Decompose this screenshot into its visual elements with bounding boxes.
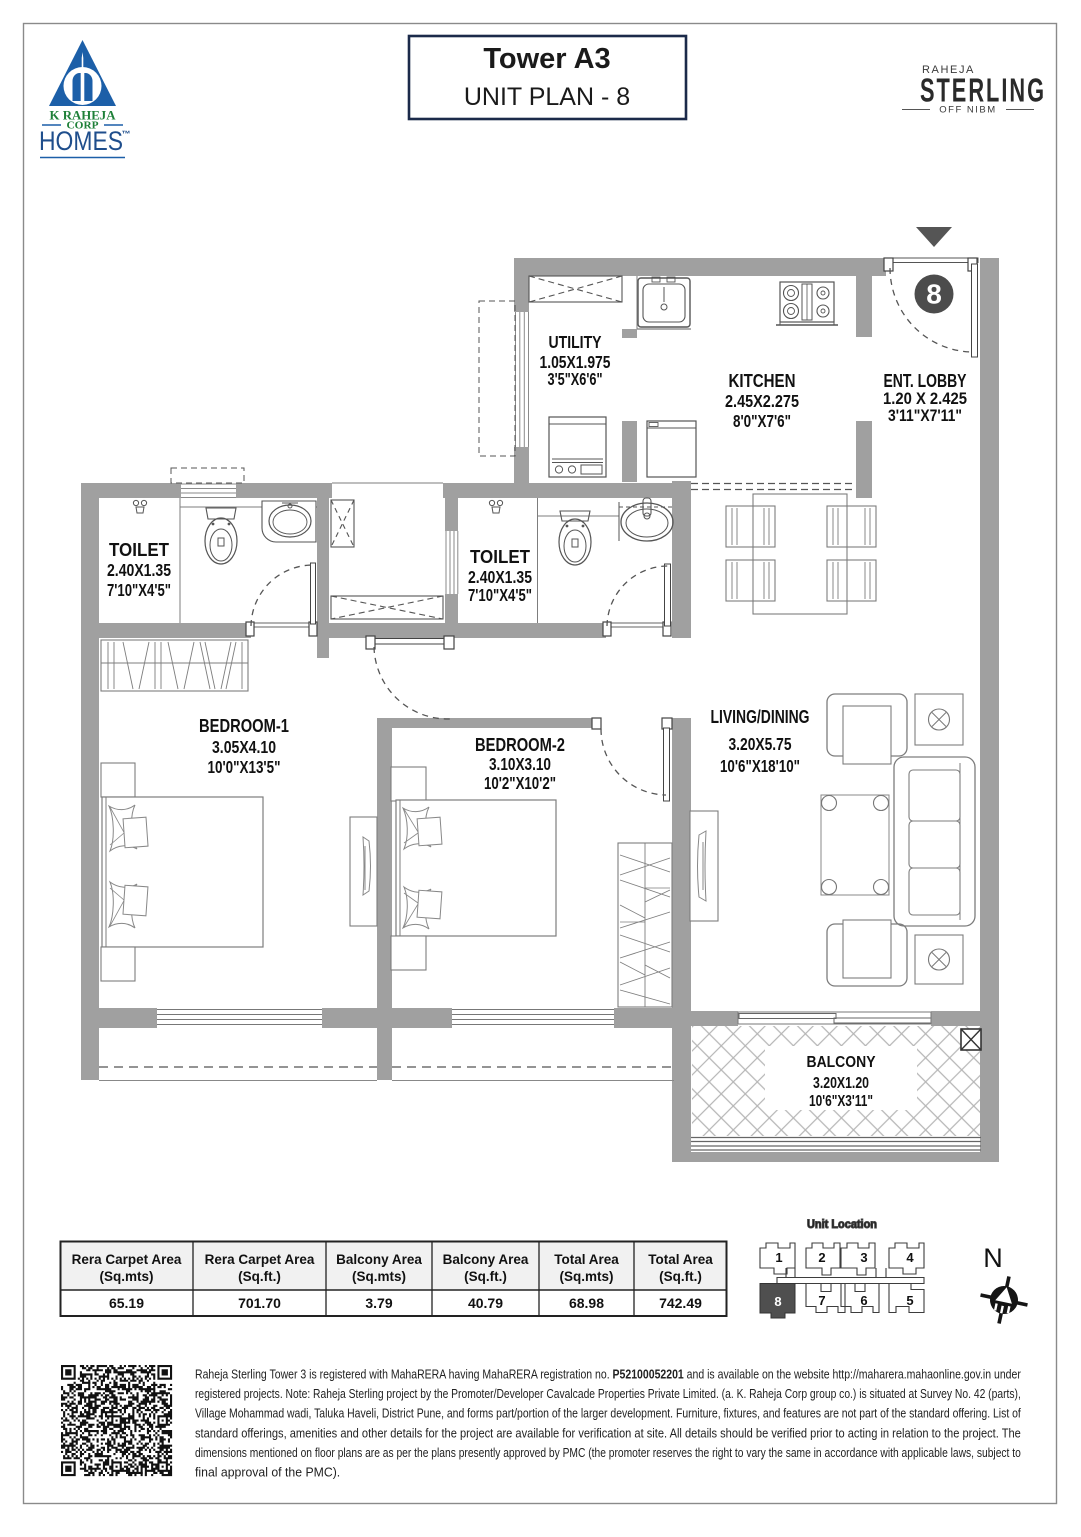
svg-text:2.45X2.275: 2.45X2.275 bbox=[725, 391, 799, 411]
svg-text:KITCHEN: KITCHEN bbox=[729, 371, 796, 391]
svg-text:10'6"X18'10": 10'6"X18'10" bbox=[720, 756, 800, 776]
svg-text:Unit Location: Unit Location bbox=[807, 1217, 877, 1231]
svg-text:6: 6 bbox=[860, 1293, 867, 1308]
svg-text:7: 7 bbox=[818, 1293, 825, 1308]
svg-text:N: N bbox=[983, 1243, 1003, 1273]
svg-text:3.05X4.10: 3.05X4.10 bbox=[212, 737, 276, 757]
svg-text:10'0"X13'5": 10'0"X13'5" bbox=[208, 757, 281, 777]
svg-text:742.49: 742.49 bbox=[659, 1295, 702, 1311]
svg-text:65.19: 65.19 bbox=[109, 1295, 144, 1311]
svg-text:2: 2 bbox=[818, 1250, 825, 1265]
svg-text:final approval of the PMC).: final approval of the PMC). bbox=[195, 1464, 340, 1480]
svg-text:68.98: 68.98 bbox=[569, 1295, 604, 1311]
svg-text:3.20X1.20: 3.20X1.20 bbox=[813, 1075, 869, 1092]
svg-text:10'2"X10'2": 10'2"X10'2" bbox=[484, 773, 556, 793]
svg-text:LIVING/DINING: LIVING/DINING bbox=[711, 707, 810, 727]
svg-text:8: 8 bbox=[926, 279, 942, 310]
svg-text:Total Area: Total Area bbox=[648, 1252, 713, 1267]
svg-text:registered projects. Note: Rah: registered projects. Note: Raheja Sterli… bbox=[195, 1386, 1021, 1402]
svg-text:Balcony Area: Balcony Area bbox=[443, 1252, 529, 1267]
svg-text:STERLING: STERLING bbox=[920, 72, 1046, 109]
svg-text:HOMES: HOMES bbox=[39, 126, 123, 156]
svg-text:(Sq.ft.): (Sq.ft.) bbox=[659, 1269, 702, 1284]
svg-text:7'10"X4'5": 7'10"X4'5" bbox=[107, 580, 171, 600]
svg-text:3.10X3.10: 3.10X3.10 bbox=[489, 754, 551, 774]
svg-text:Rera Carpet Area: Rera Carpet Area bbox=[205, 1252, 315, 1267]
svg-text:UTILITY: UTILITY bbox=[549, 332, 602, 352]
svg-text:4: 4 bbox=[906, 1250, 914, 1265]
svg-text:10'6"X3'11": 10'6"X3'11" bbox=[809, 1093, 873, 1110]
svg-text:TOILET: TOILET bbox=[470, 547, 530, 567]
svg-text:3.20X5.75: 3.20X5.75 bbox=[729, 734, 792, 754]
svg-text:dimensions mentioned on floor: dimensions mentioned on floor plans are … bbox=[195, 1444, 1021, 1460]
svg-text:Village Mohammad wadi, Taluka: Village Mohammad wadi, Taluka Haveli, Di… bbox=[195, 1405, 1021, 1421]
svg-text:Total Area: Total Area bbox=[554, 1252, 619, 1267]
svg-text:3: 3 bbox=[860, 1250, 867, 1265]
svg-text:2.40X1.35: 2.40X1.35 bbox=[107, 560, 171, 580]
svg-text:OFF NIBM: OFF NIBM bbox=[939, 105, 996, 116]
svg-text:3.79: 3.79 bbox=[365, 1295, 392, 1311]
svg-text:™: ™ bbox=[122, 129, 131, 139]
svg-text:1: 1 bbox=[775, 1250, 782, 1265]
svg-text:3'11"X7'11": 3'11"X7'11" bbox=[888, 406, 962, 425]
svg-text:BEDROOM-1: BEDROOM-1 bbox=[199, 716, 289, 736]
svg-text:701.70: 701.70 bbox=[238, 1295, 281, 1311]
svg-text:2.40X1.35: 2.40X1.35 bbox=[468, 567, 532, 587]
svg-text:(Sq.mts): (Sq.mts) bbox=[352, 1269, 406, 1284]
svg-text:8'0"X7'6": 8'0"X7'6" bbox=[733, 411, 791, 431]
svg-text:(Sq.mts): (Sq.mts) bbox=[100, 1269, 154, 1284]
svg-text:Tower A3: Tower A3 bbox=[483, 43, 610, 75]
svg-text:Raheja Sterling Tower 3 is reg: Raheja Sterling Tower 3 is registered wi… bbox=[195, 1366, 1021, 1382]
svg-text:7'10"X4'5": 7'10"X4'5" bbox=[468, 585, 532, 605]
svg-text:TOILET: TOILET bbox=[109, 540, 169, 560]
svg-text:40.79: 40.79 bbox=[468, 1295, 503, 1311]
svg-text:8: 8 bbox=[774, 1294, 781, 1309]
svg-text:Rera Carpet Area: Rera Carpet Area bbox=[72, 1252, 182, 1267]
svg-text:(Sq.ft.): (Sq.ft.) bbox=[464, 1269, 507, 1284]
svg-text:Balcony Area: Balcony Area bbox=[336, 1252, 422, 1267]
svg-text:(Sq.mts): (Sq.mts) bbox=[560, 1269, 614, 1284]
svg-text:ENT. LOBBY: ENT. LOBBY bbox=[884, 371, 967, 391]
svg-text:BEDROOM-2: BEDROOM-2 bbox=[475, 735, 565, 755]
svg-text:(Sq.ft.): (Sq.ft.) bbox=[238, 1269, 281, 1284]
svg-text:3'5"X6'6": 3'5"X6'6" bbox=[548, 369, 603, 389]
svg-text:UNIT PLAN - 8: UNIT PLAN - 8 bbox=[464, 83, 630, 111]
svg-text:standard offerings, amenities: standard offerings, amenities and other … bbox=[195, 1425, 1021, 1441]
svg-text:5: 5 bbox=[906, 1293, 913, 1308]
svg-text:BALCONY: BALCONY bbox=[807, 1054, 876, 1071]
